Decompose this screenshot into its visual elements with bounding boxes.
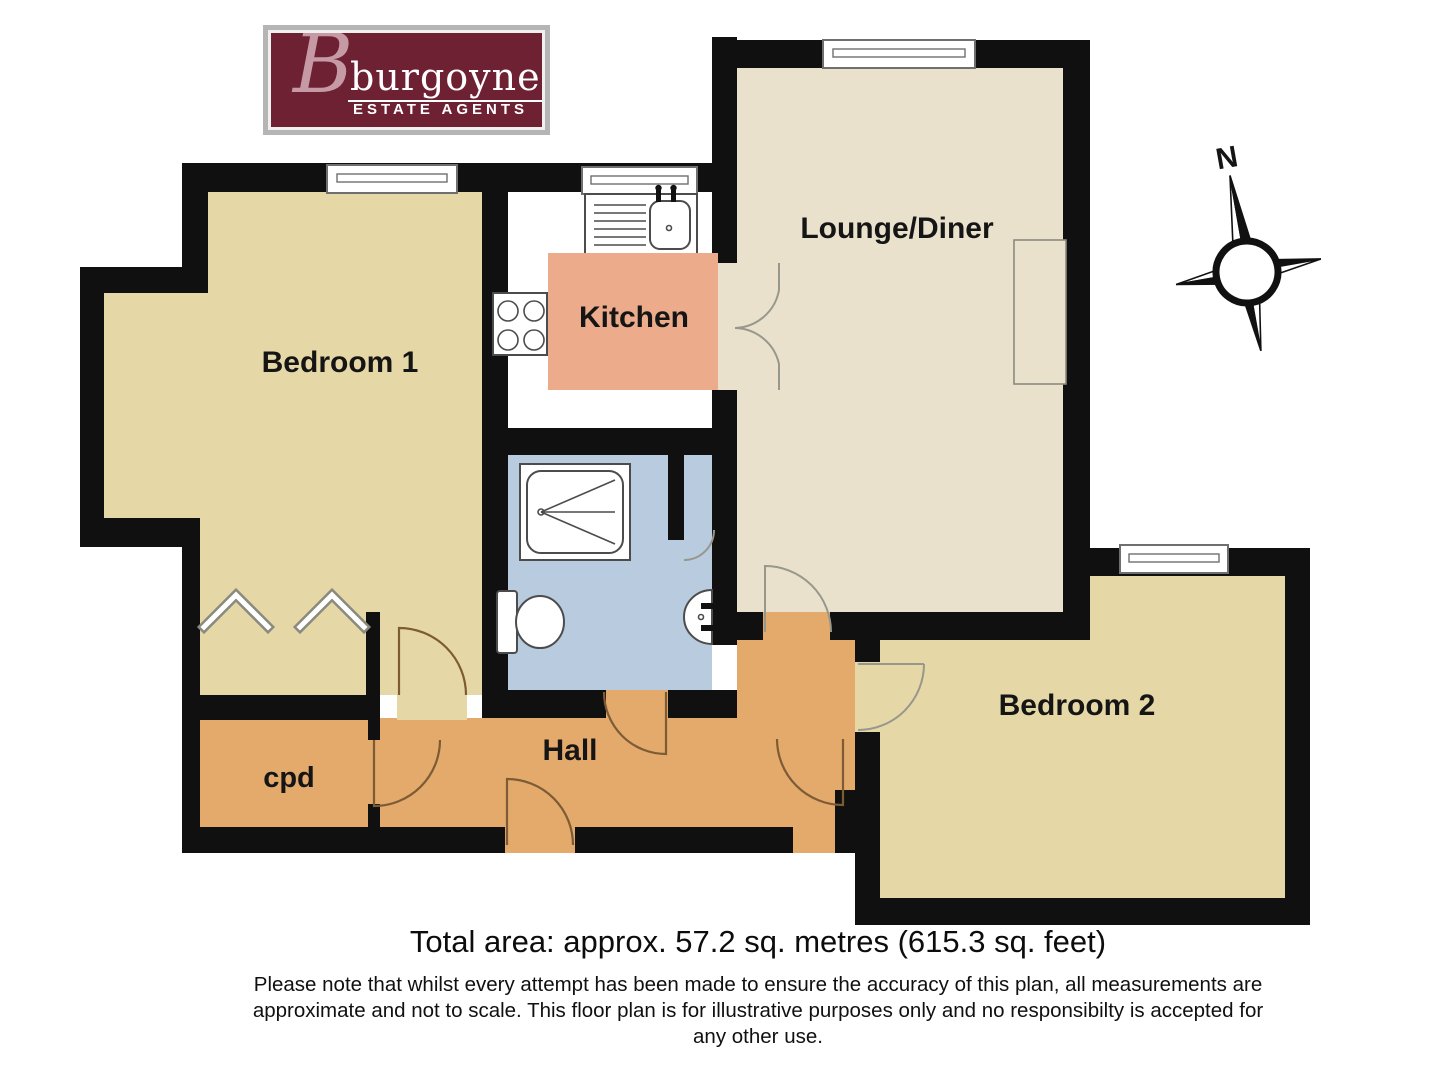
- bedroom2-label: Bedroom 2: [999, 689, 1156, 722]
- lounge-chimney-recess: [1014, 240, 1066, 384]
- agency-logo-panel: B burgoynes ESTATE AGENTS: [268, 30, 545, 130]
- kitchen-window: [582, 167, 697, 194]
- footer: Total area: approx. 57.2 sq. metres (615…: [0, 924, 1441, 1050]
- lounge-window: [823, 40, 975, 68]
- total-area-text: Total area: approx. 57.2 sq. metres (615…: [75, 924, 1441, 960]
- disclaimer-line-3: any other use.: [75, 1024, 1441, 1050]
- agency-logo-name: burgoynes: [348, 55, 545, 102]
- kitchen-label: Kitchen: [579, 301, 689, 334]
- floorplan-drawing: N Bedroom 1 Kitchen Lounge/Diner Bedroom…: [0, 0, 1441, 1080]
- cpd-label: cpd: [263, 762, 315, 794]
- bedroom1-window: [327, 165, 457, 193]
- toilet-cistern: [497, 591, 517, 653]
- toilet-bowl: [516, 596, 564, 648]
- disclaimer-line-2: approximate and not to scale. This floor…: [75, 998, 1441, 1024]
- bedroom2-window: [1120, 545, 1228, 573]
- agency-logo-tagline: ESTATE AGENTS: [353, 101, 528, 118]
- disclaimer-line-1: Please note that whilst every attempt ha…: [75, 972, 1441, 998]
- disclaimer-text: Please note that whilst every attempt ha…: [75, 972, 1441, 1050]
- floorplan-page: N Bedroom 1 Kitchen Lounge/Diner Bedroom…: [0, 0, 1441, 1080]
- hall-label: Hall: [542, 734, 597, 767]
- compass-north-label: N: [1213, 140, 1240, 176]
- lounge-label: Lounge/Diner: [800, 212, 994, 245]
- compass-rose: N: [1153, 129, 1335, 363]
- agency-logo: B burgoynes ESTATE AGENTS: [263, 25, 550, 135]
- bedroom1-label: Bedroom 1: [262, 346, 419, 379]
- agency-logo-initial: B: [293, 30, 353, 112]
